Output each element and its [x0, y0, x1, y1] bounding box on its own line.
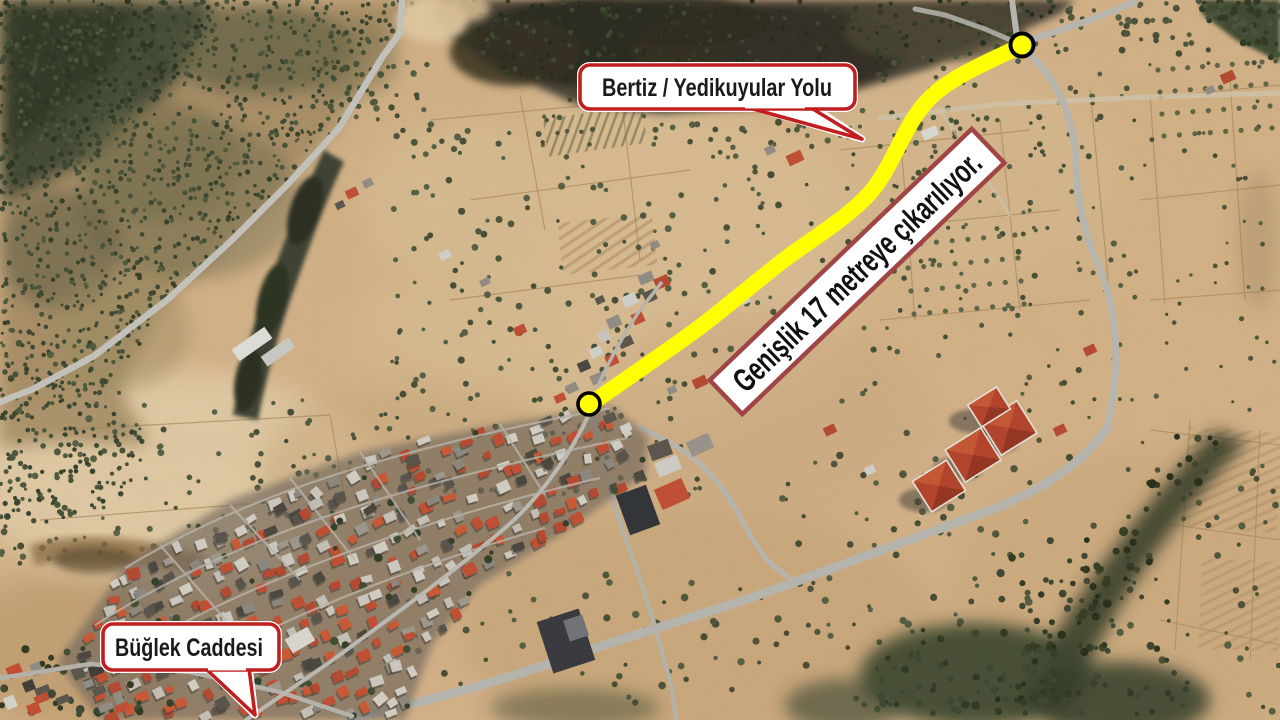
- svg-text:Bertiz / Yedikuyular Yolu: Bertiz / Yedikuyular Yolu: [602, 74, 832, 102]
- svg-text:Büğlek Caddesi: Büğlek Caddesi: [115, 634, 263, 662]
